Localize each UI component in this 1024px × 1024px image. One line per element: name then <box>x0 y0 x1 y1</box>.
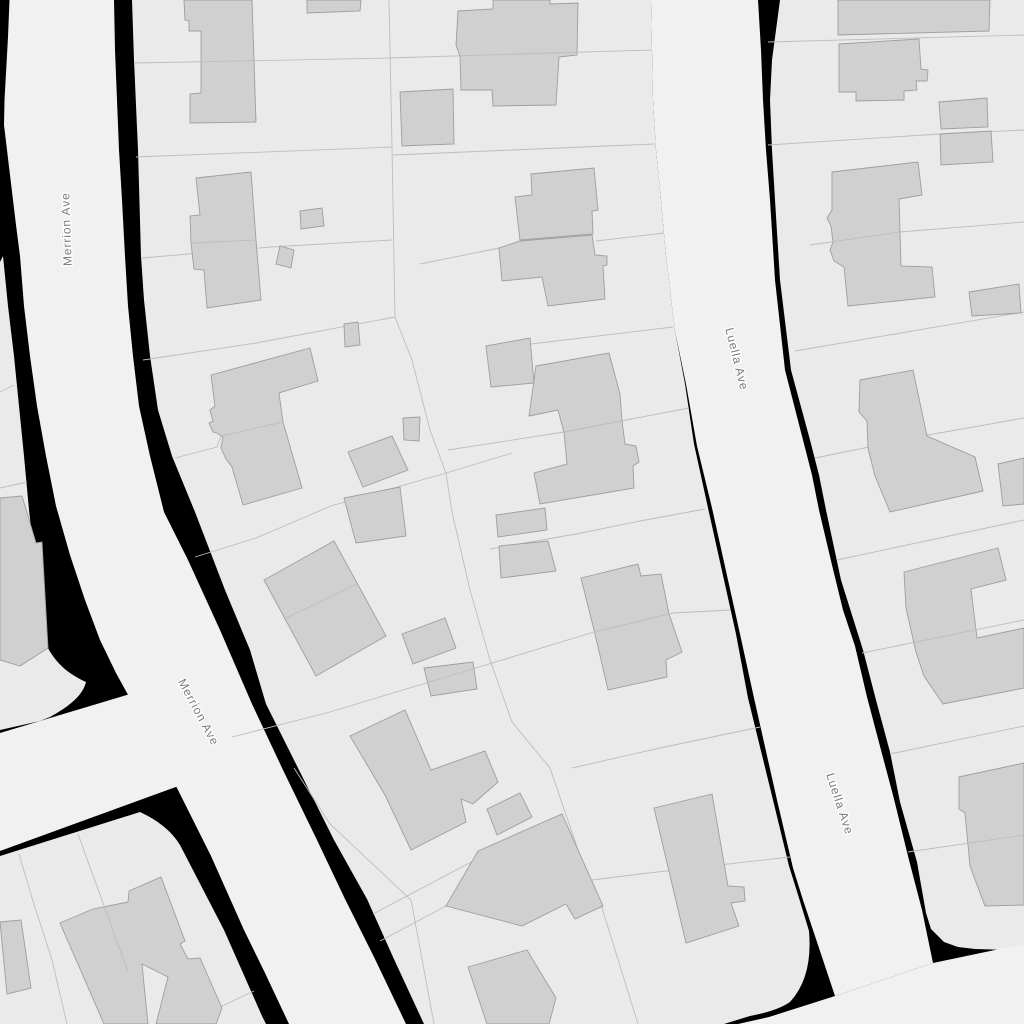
svg-text:Merrion Ave: Merrion Ave <box>58 192 75 266</box>
